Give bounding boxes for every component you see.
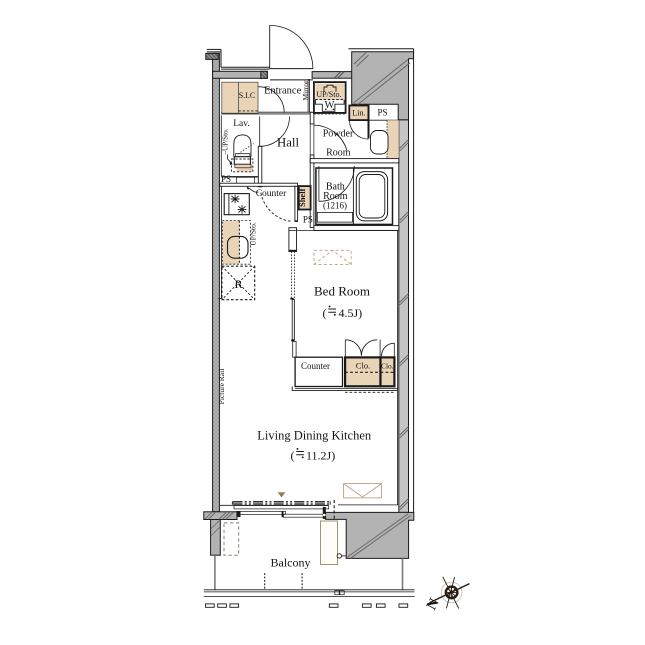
svg-text:Entrance: Entrance [264,86,302,97]
svg-text:Mirror: Mirror [301,80,310,100]
svg-text:W: W [325,100,335,111]
svg-text:R: R [234,277,242,291]
svg-text:PS: PS [303,215,313,225]
svg-text:Clo.: Clo. [381,362,394,371]
svg-text:Balcony: Balcony [271,556,311,570]
svg-text:Living Dining Kitchen: Living Dining Kitchen [257,429,372,443]
svg-text:Lav.: Lav. [233,119,250,129]
svg-text:(: ( [323,306,327,320]
svg-text:4.5J): 4.5J) [339,306,363,320]
svg-text:Hall: Hall [277,135,299,149]
svg-text:(1216): (1216) [323,201,347,211]
svg-text:Clo.: Clo. [356,361,370,371]
svg-text:PS: PS [221,174,231,184]
svg-text:S.I.C: S.I.C [239,91,255,100]
svg-text:Counter: Counter [301,361,330,371]
svg-text:UP/Sto.: UP/Sto. [248,222,257,246]
svg-text:Lin.: Lin. [352,109,365,118]
svg-text:(: ( [291,448,295,462]
svg-text:–UP/Sto.: –UP/Sto. [222,128,230,155]
svg-text:Bed Room: Bed Room [314,283,370,298]
svg-text:PS: PS [377,108,387,118]
svg-text:Counter: Counter [256,189,287,199]
svg-text:11.2J): 11.2J) [306,448,335,462]
svg-text:Shelf: Shelf [297,188,307,207]
svg-text:UP/Sto.: UP/Sto. [316,90,341,99]
svg-text:Room: Room [326,148,351,159]
svg-text:Powder: Powder [323,128,354,139]
svg-text:Picture Rail: Picture Rail [217,369,226,405]
